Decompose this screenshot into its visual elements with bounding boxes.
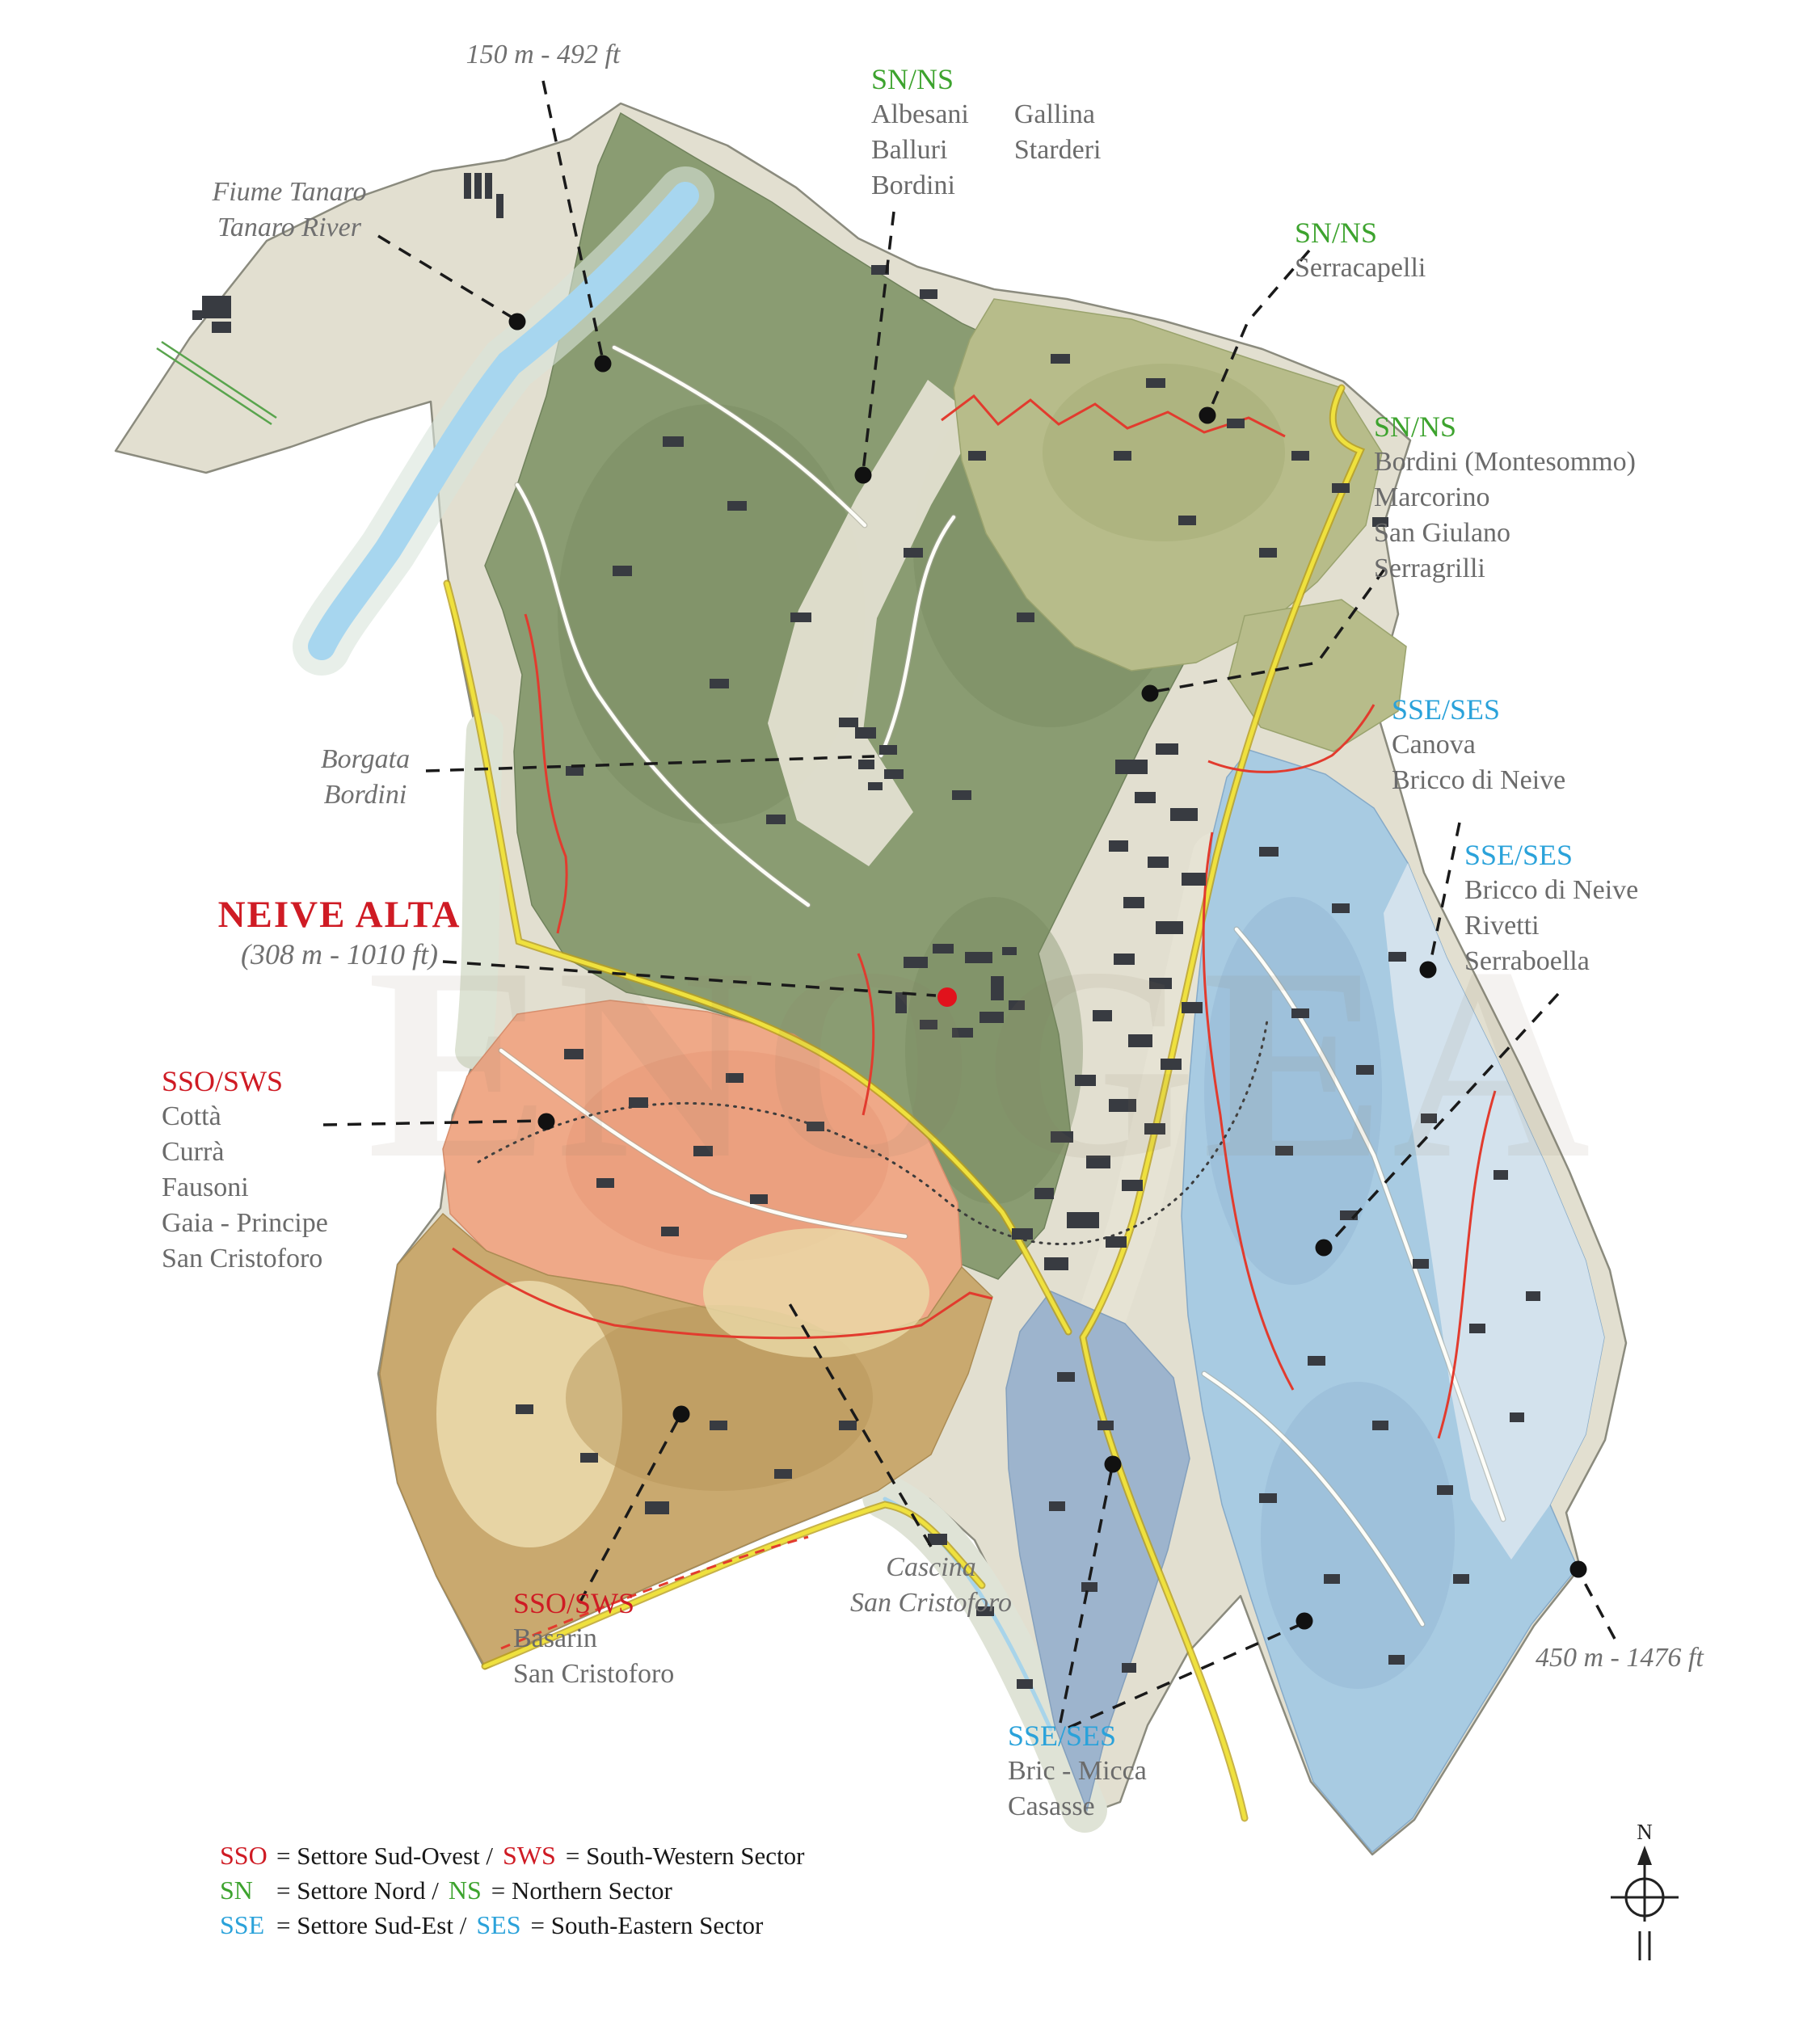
- legend-code-sse: SSE: [220, 1910, 276, 1940]
- river-label-line1: Fiume Tanaro: [160, 175, 419, 210]
- vineyard-name: Serracapelli: [1295, 250, 1426, 286]
- sector-sw-basarin-label: SSO/SWS Basarin San Cristoforo: [513, 1585, 674, 1692]
- sector-code: SSO/SWS: [162, 1063, 328, 1099]
- sector-north-albesani-label: SN/NS Albesani Balluri Bordini Gallina S…: [871, 61, 1102, 204]
- legend-code-sws: SWS: [503, 1841, 556, 1871]
- vineyard-name: Currà: [162, 1135, 328, 1170]
- vineyard-name: Serraboella: [1464, 944, 1638, 979]
- sector-code: SSE/SES: [1008, 1718, 1147, 1753]
- cascina-line1: Cascina: [810, 1550, 1052, 1585]
- vineyard-name: Fausoni: [162, 1170, 328, 1206]
- legend-text: = Northern Sector: [491, 1876, 672, 1905]
- vineyard-name: Bordini (Montesommo): [1374, 444, 1636, 480]
- vineyard-name: Casasse: [1008, 1789, 1147, 1825]
- borgata-bordini-label: Borgata Bordini: [260, 742, 470, 813]
- vineyard-name: Gallina: [1014, 97, 1102, 133]
- neive-alta-dot: [937, 987, 957, 1007]
- legend: SSO = Settore Sud-Ovest / SWS = South-We…: [220, 1841, 815, 1945]
- elevation-max-label: 450 m - 1476 ft: [1536, 1640, 1704, 1676]
- sector-se-canova-label: SSE/SES Canova Bricco di Neive: [1392, 692, 1565, 798]
- compass-north-label: N: [1637, 1820, 1653, 1844]
- vineyard-name: San Giulano: [1374, 516, 1636, 551]
- legend-text: = South-Western Sector: [566, 1842, 805, 1871]
- neive-alta-elevation: (308 m - 1010 ft): [145, 936, 533, 973]
- vineyard-name: Gaia - Principe: [162, 1206, 328, 1241]
- borgata-line2: Bordini: [260, 777, 470, 813]
- sector-north-bordini-label: SN/NS Bordini (Montesommo) Marcorino San…: [1374, 409, 1636, 587]
- vineyard-name: Marcorino: [1374, 480, 1636, 516]
- legend-code-ses: SES: [476, 1910, 520, 1940]
- sector-sw-cotta-label: SSO/SWS Cottà Currà Fausoni Gaia - Princ…: [162, 1063, 328, 1277]
- legend-text: = Settore Sud-Est /: [276, 1911, 466, 1940]
- neive-alta-title: NEIVE ALTA: [145, 894, 533, 936]
- sector-se-bricco-label: SSE/SES Bricco di Neive Rivetti Serraboe…: [1464, 837, 1638, 979]
- elevation-min-label: 150 m - 492 ft: [414, 37, 672, 73]
- legend-row-sn: SN = Settore Nord / NS = Northern Sector: [220, 1876, 815, 1910]
- map-canvas: ENOGEA: [0, 0, 1820, 2025]
- legend-code-sso: SSO: [220, 1841, 276, 1871]
- vineyard-name: Cottà: [162, 1099, 328, 1135]
- vineyard-name: Rivetti: [1464, 908, 1638, 944]
- sector-code: SN/NS: [1295, 215, 1426, 250]
- legend-text: = Settore Nord /: [276, 1876, 439, 1905]
- vineyard-name: Basarin: [513, 1621, 674, 1657]
- cascina-label: Cascina San Cristoforo: [810, 1550, 1052, 1621]
- sector-code: SSO/SWS: [513, 1585, 674, 1621]
- vineyard-name: Bordini: [871, 168, 969, 204]
- vineyard-name: Bric - Micca: [1008, 1753, 1147, 1789]
- vineyard-name: Bricco di Neive: [1464, 873, 1638, 908]
- sector-code: SN/NS: [871, 61, 1102, 97]
- sector-code: SSE/SES: [1392, 692, 1565, 727]
- neive-map-art: ENOGEA: [0, 0, 1820, 2025]
- legend-code-ns: NS: [449, 1876, 482, 1905]
- vineyard-name: Bricco di Neive: [1392, 763, 1565, 798]
- compass-rose: [1611, 1846, 1679, 1960]
- sector-code: SN/NS: [1374, 409, 1636, 444]
- legend-row-sse: SSE = Settore Sud-Est / SES = South-East…: [220, 1910, 815, 1945]
- legend-row-sso: SSO = Settore Sud-Ovest / SWS = South-We…: [220, 1841, 815, 1876]
- vineyard-name: Serragrilli: [1374, 551, 1636, 587]
- vineyard-name: Balluri: [871, 133, 969, 168]
- legend-code-sn: SN: [220, 1876, 276, 1905]
- river-label-line2: Tanaro River: [160, 210, 419, 246]
- vineyard-name: Canova: [1392, 727, 1565, 763]
- watermark-text: ENOGEA: [367, 911, 1597, 1215]
- vineyard-name: San Cristoforo: [162, 1241, 328, 1277]
- vineyard-name: Starderi: [1014, 133, 1102, 168]
- borgata-line1: Borgata: [260, 742, 470, 777]
- legend-text: = South-Eastern Sector: [530, 1911, 763, 1940]
- river-label: Fiume Tanaro Tanaro River: [160, 175, 419, 246]
- vineyard-name: San Cristoforo: [513, 1657, 674, 1692]
- legend-text: = Settore Sud-Ovest /: [276, 1842, 493, 1871]
- sector-se-bric-label: SSE/SES Bric - Micca Casasse: [1008, 1718, 1147, 1825]
- cascina-line2: San Cristoforo: [810, 1585, 1052, 1621]
- neive-alta-label: NEIVE ALTA (308 m - 1010 ft): [145, 894, 533, 973]
- sector-north-serracapelli-label: SN/NS Serracapelli: [1295, 215, 1426, 286]
- sector-code: SSE/SES: [1464, 837, 1638, 873]
- vineyard-name: Albesani: [871, 97, 969, 133]
